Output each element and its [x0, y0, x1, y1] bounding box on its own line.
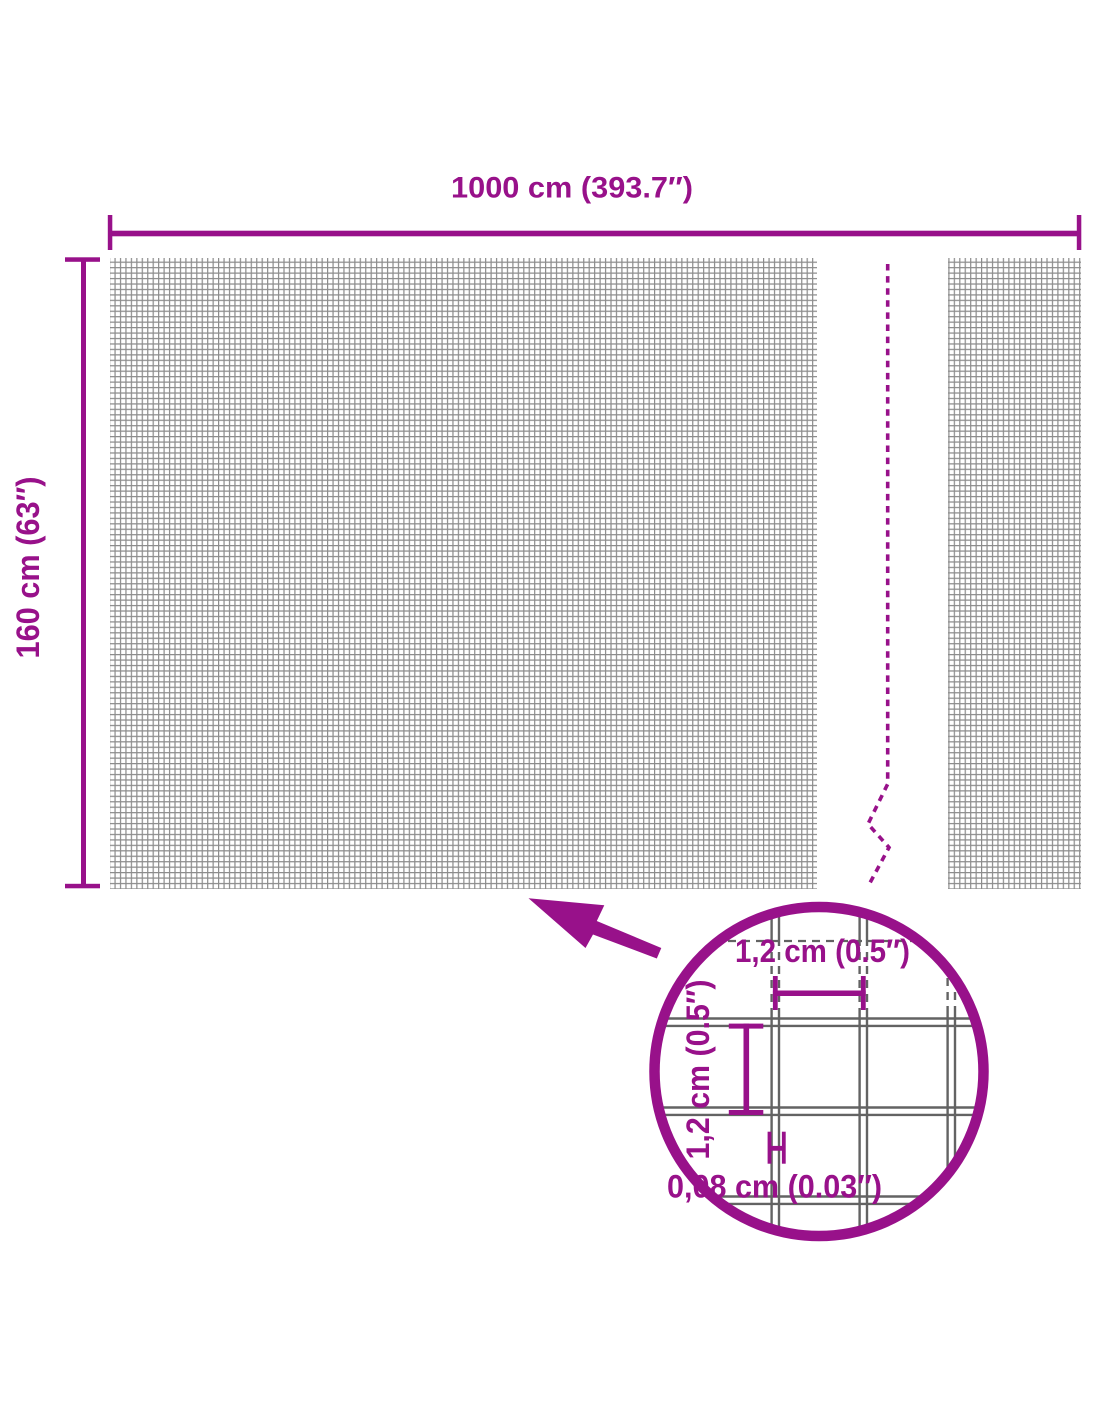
- svg-text:160 cm (63″): 160 cm (63″): [10, 477, 46, 659]
- svg-text:1,2 cm (0.5″): 1,2 cm (0.5″): [680, 980, 716, 1160]
- svg-text:1000 cm (393.7″): 1000 cm (393.7″): [451, 171, 693, 204]
- svg-text:1,2 cm (0.5″): 1,2 cm (0.5″): [735, 933, 910, 969]
